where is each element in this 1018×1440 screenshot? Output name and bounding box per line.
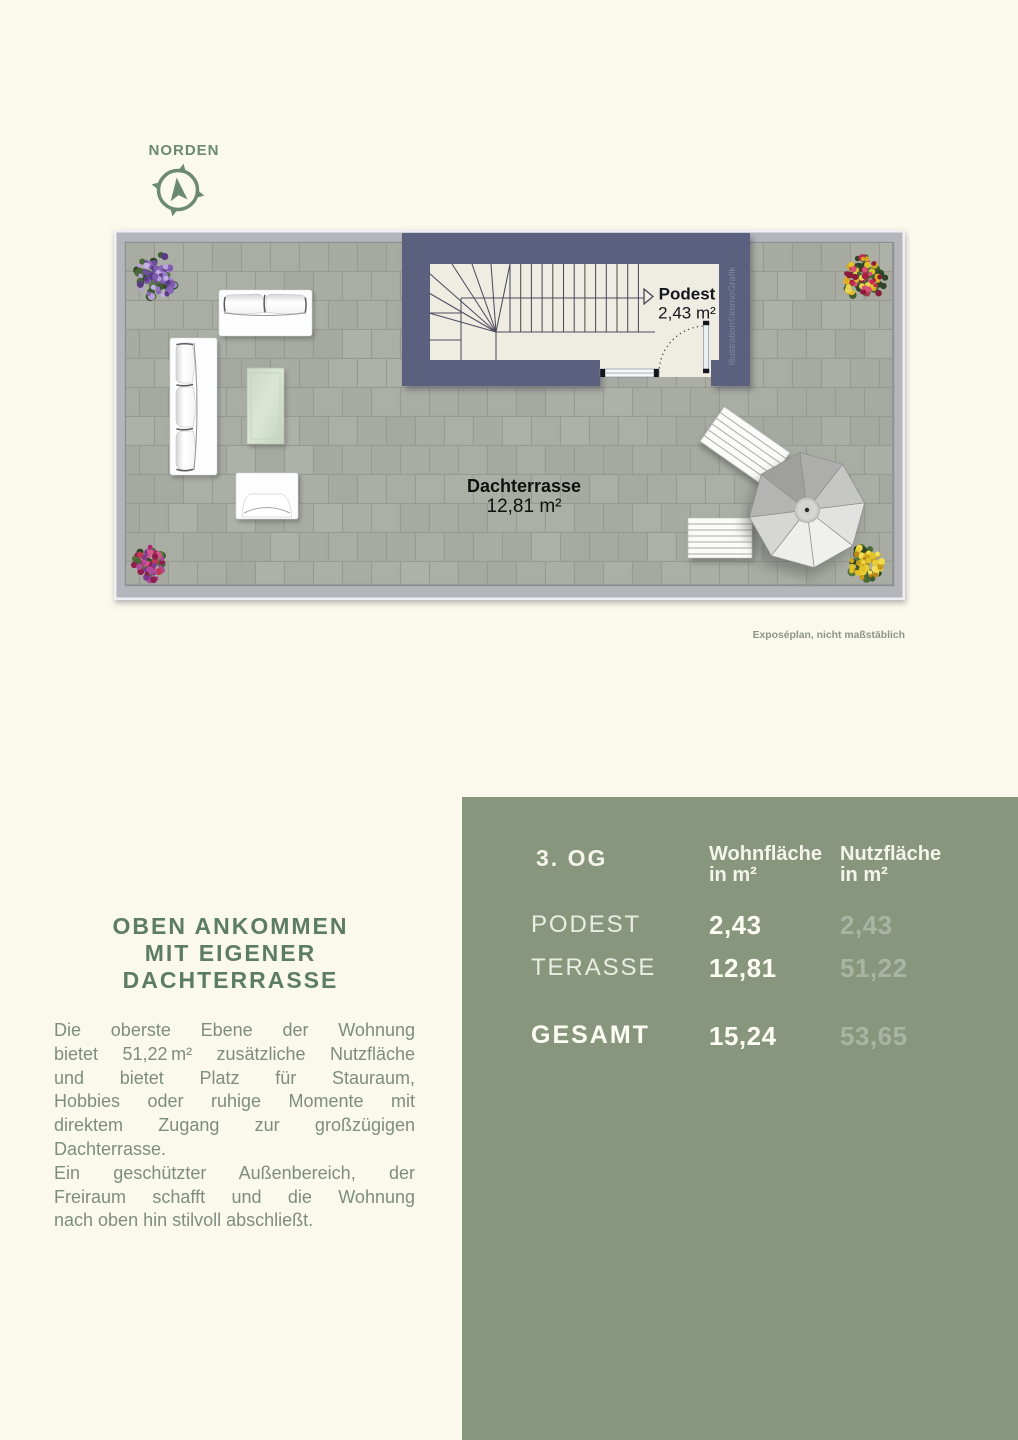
svg-text:Dachterrasse: Dachterrasse (467, 476, 581, 496)
svg-text:illustration©immoGrafik: illustration©immoGrafik (727, 267, 738, 366)
svg-text:Podest: Podest (659, 285, 716, 304)
svg-text:2,43 m²: 2,43 m² (658, 304, 716, 323)
svg-text:12,81 m²: 12,81 m² (487, 496, 562, 517)
